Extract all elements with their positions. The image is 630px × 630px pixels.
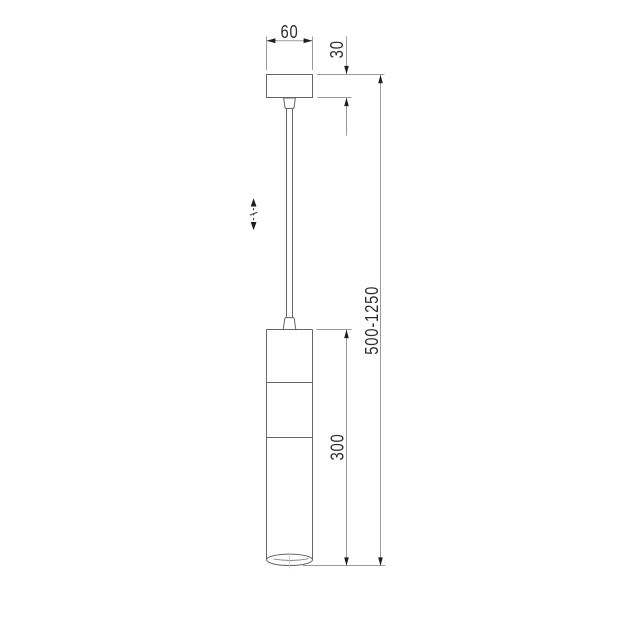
svg-text:60: 60 xyxy=(280,22,298,43)
svg-text:30: 30 xyxy=(326,40,347,58)
svg-text:300: 300 xyxy=(327,433,348,460)
svg-text:500-1250: 500-1250 xyxy=(361,286,382,355)
